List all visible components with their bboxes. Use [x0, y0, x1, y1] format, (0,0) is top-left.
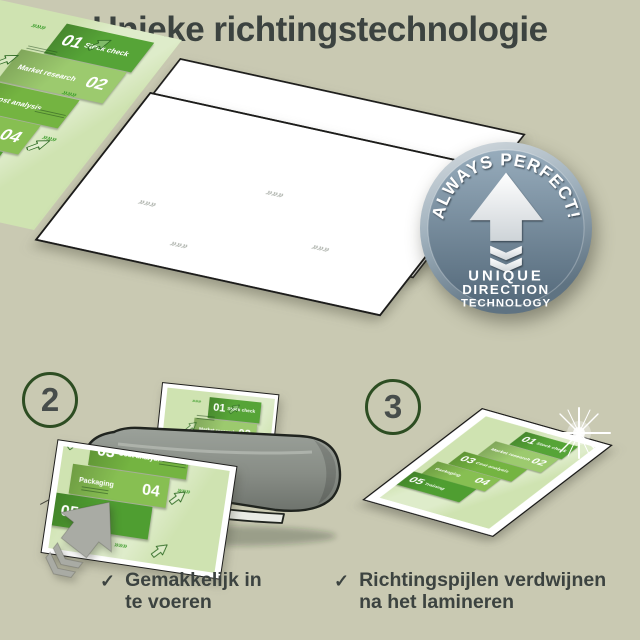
step-circle-3: 3 — [365, 379, 421, 435]
infographic-stage: Unieke richtingstechnologie 1 »»»»»»»»»»… — [0, 0, 640, 640]
direction-arrow-doodle — [0, 184, 6, 204]
doc-step-label: Packaging — [433, 467, 462, 477]
doc-step-number: 03 — [96, 446, 116, 461]
check-icon: ✓ — [100, 569, 115, 614]
direction-arrow-watermark: »»» — [28, 21, 48, 32]
step-number: 2 — [41, 381, 59, 419]
step-number: 3 — [384, 388, 402, 426]
direction-arrow-doodle — [66, 446, 88, 452]
doc-step-label: Cost analysis — [474, 462, 510, 474]
sparkle-icon — [546, 400, 612, 466]
step-circle-2: 2 — [22, 372, 78, 428]
benefit-note-text: Gemakkelijk in te voeren — [125, 569, 275, 614]
doc-step-label: Cost analysis — [118, 450, 164, 464]
doc-step-label: Market research — [16, 63, 78, 82]
direction-arrow-doodle — [150, 541, 172, 561]
doc-step-label: Training — [423, 482, 446, 491]
badge-line-technology: TECHNOLOGY — [461, 298, 551, 310]
benefit-note-easy-feed: ✓ Gemakkelijk in te voeren — [100, 569, 275, 614]
doc-step-number: 02 — [81, 75, 111, 94]
benefit-note-text: Richtingspijlen verdwijnen na het lamine… — [359, 569, 614, 614]
doc-step-number: 04 — [0, 127, 26, 146]
always-perfect-badge: ALWAYS PERFECT! UNIQUE DIRECTION TECHNOL… — [418, 140, 594, 316]
doc-step-number: 04 — [141, 481, 161, 500]
check-icon: ✓ — [334, 569, 349, 614]
benefit-note-arrows-disappear: ✓ Richtingspijlen verdwijnen na het lami… — [334, 569, 614, 614]
doc-step-number: 04 — [471, 477, 492, 487]
direction-arrow-watermark: »»» — [192, 398, 201, 405]
direction-arrow-doodle — [168, 487, 190, 507]
badge-line-direction: DIRECTION — [462, 282, 550, 297]
